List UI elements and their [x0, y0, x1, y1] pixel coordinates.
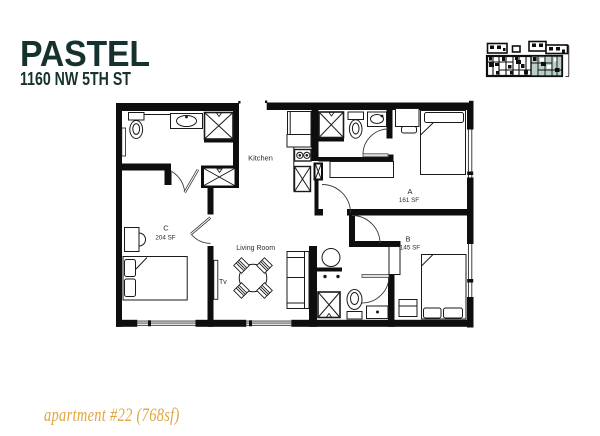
svg-text:A: A — [407, 187, 412, 196]
svg-text:161 SF: 161 SF — [399, 197, 419, 204]
svg-text:145 SF: 145 SF — [400, 245, 420, 252]
svg-text:B: B — [405, 235, 410, 244]
svg-text:Tv: Tv — [219, 279, 227, 286]
svg-text:Kitchen: Kitchen — [248, 154, 273, 163]
svg-text:C: C — [163, 224, 169, 233]
svg-text:Living Room: Living Room — [236, 245, 275, 252]
svg-text:204 SF: 204 SF — [155, 235, 175, 242]
